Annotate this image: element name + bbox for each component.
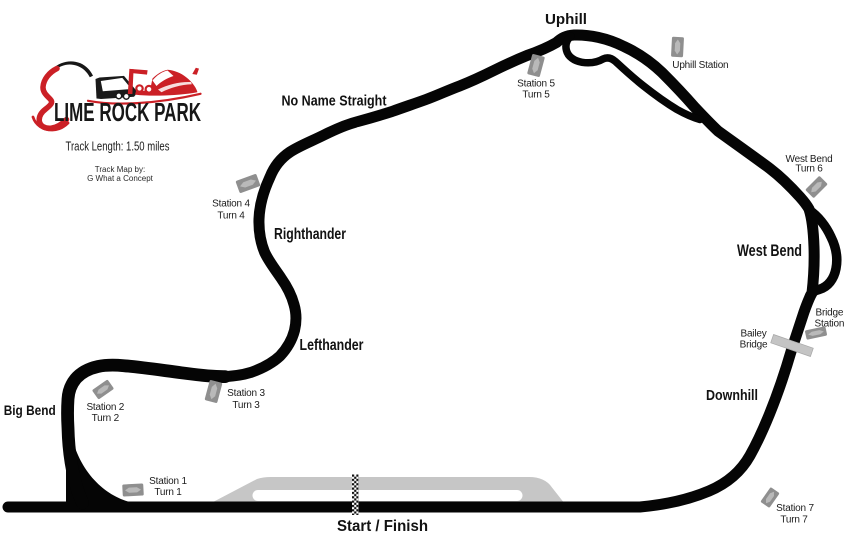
svg-text:Station 5: Station 5 bbox=[517, 79, 555, 90]
svg-text:Bridge: Bridge bbox=[740, 340, 768, 351]
svg-text:Station 7: Station 7 bbox=[776, 503, 814, 514]
svg-text:G What a Concept: G What a Concept bbox=[87, 174, 154, 183]
svg-text:Lefthander: Lefthander bbox=[300, 337, 364, 354]
svg-text:LIME ROCK PARK: LIME ROCK PARK bbox=[54, 99, 201, 127]
svg-text:Turn 4: Turn 4 bbox=[217, 211, 245, 222]
svg-text:Bailey: Bailey bbox=[740, 329, 766, 340]
svg-text:Uphill Station: Uphill Station bbox=[672, 60, 728, 71]
svg-text:Station 3: Station 3 bbox=[227, 388, 265, 399]
svg-text:Turn 3: Turn 3 bbox=[232, 400, 260, 411]
svg-text:Turn 6: Turn 6 bbox=[795, 164, 823, 175]
svg-text:Start / Finish: Start / Finish bbox=[337, 518, 428, 535]
svg-text:Uphill: Uphill bbox=[545, 12, 587, 28]
svg-text:Track Length: 1.50 miles: Track Length: 1.50 miles bbox=[66, 140, 170, 154]
svg-text:Station 4: Station 4 bbox=[212, 199, 250, 210]
svg-text:West Bend: West Bend bbox=[737, 242, 802, 260]
svg-text:Downhill: Downhill bbox=[706, 387, 758, 404]
svg-text:Turn 5: Turn 5 bbox=[522, 90, 550, 101]
svg-text:No Name Straight: No Name Straight bbox=[282, 94, 387, 110]
svg-text:Turn 2: Turn 2 bbox=[92, 413, 120, 424]
svg-text:Station 1: Station 1 bbox=[149, 476, 187, 487]
svg-text:Righthander: Righthander bbox=[274, 226, 346, 243]
svg-text:Station 2: Station 2 bbox=[86, 402, 124, 413]
svg-text:Big Bend: Big Bend bbox=[4, 403, 56, 418]
svg-text:Turn 7: Turn 7 bbox=[780, 515, 808, 526]
svg-text:Bridge: Bridge bbox=[816, 308, 844, 319]
svg-text:Station: Station bbox=[815, 319, 845, 330]
svg-text:Turn 1: Turn 1 bbox=[154, 487, 182, 498]
svg-text:Track Map by:: Track Map by: bbox=[95, 165, 145, 174]
